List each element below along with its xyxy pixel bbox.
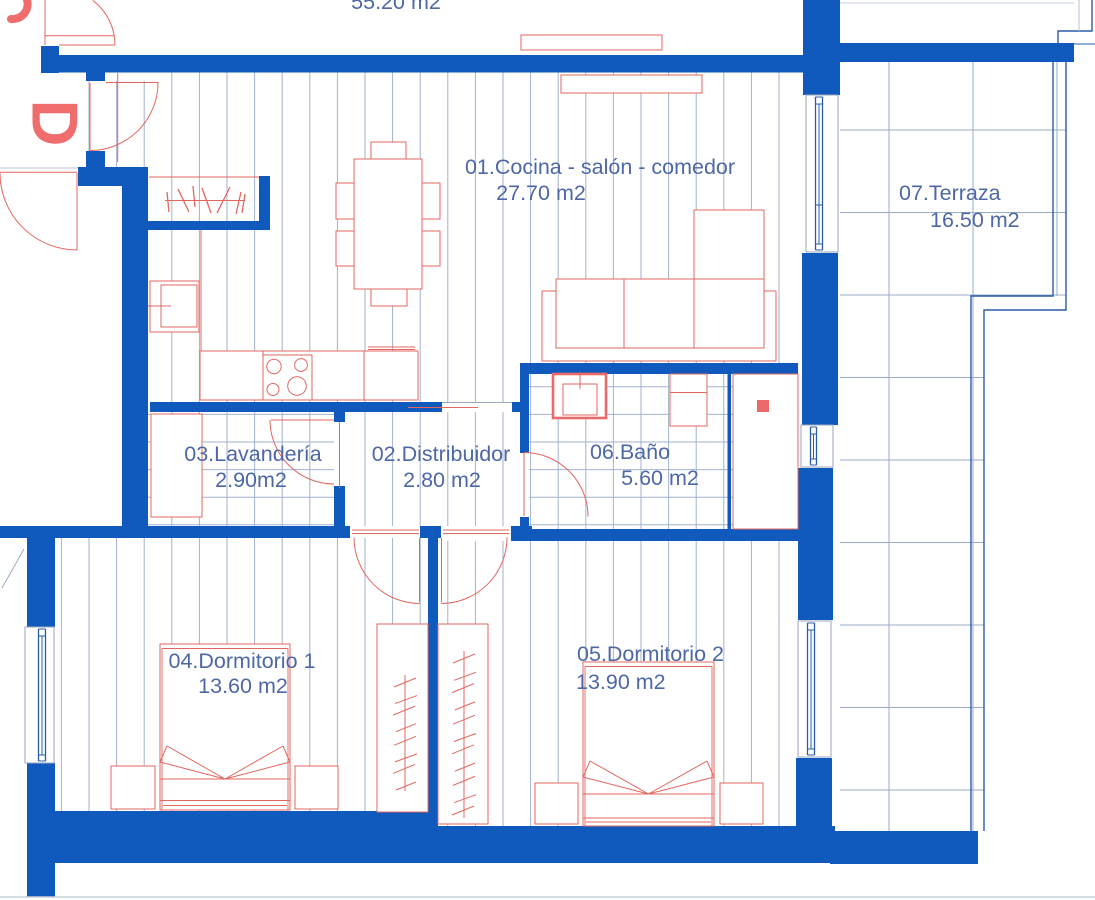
svg-text:2.90m2: 2.90m2 xyxy=(215,468,287,492)
svg-text:07.Terraza: 07.Terraza xyxy=(899,181,1001,205)
svg-text:04.Dormitorio 1: 04.Dormitorio 1 xyxy=(169,649,316,673)
svg-text:05.Dormitorio 2: 05.Dormitorio 2 xyxy=(577,642,724,666)
svg-text:16.50 m2: 16.50 m2 xyxy=(930,208,1020,232)
svg-text:55.20 m2: 55.20 m2 xyxy=(351,0,441,14)
svg-text:D: D xyxy=(19,100,92,147)
svg-text:5.60 m2: 5.60 m2 xyxy=(621,466,699,490)
svg-text:2.80 m2: 2.80 m2 xyxy=(403,468,481,492)
svg-text:02.Distribuidor: 02.Distribuidor xyxy=(372,442,511,466)
svg-text:01.Cocina - salón - comedor: 01.Cocina - salón - comedor xyxy=(465,155,735,179)
svg-text:27.70 m2: 27.70 m2 xyxy=(496,181,586,205)
svg-text:03.Lavandería: 03.Lavandería xyxy=(184,442,322,466)
svg-text:13.60 m2: 13.60 m2 xyxy=(198,674,288,698)
svg-text:06.Baño: 06.Baño xyxy=(590,440,670,464)
svg-text:13.90 m2: 13.90 m2 xyxy=(576,670,666,694)
